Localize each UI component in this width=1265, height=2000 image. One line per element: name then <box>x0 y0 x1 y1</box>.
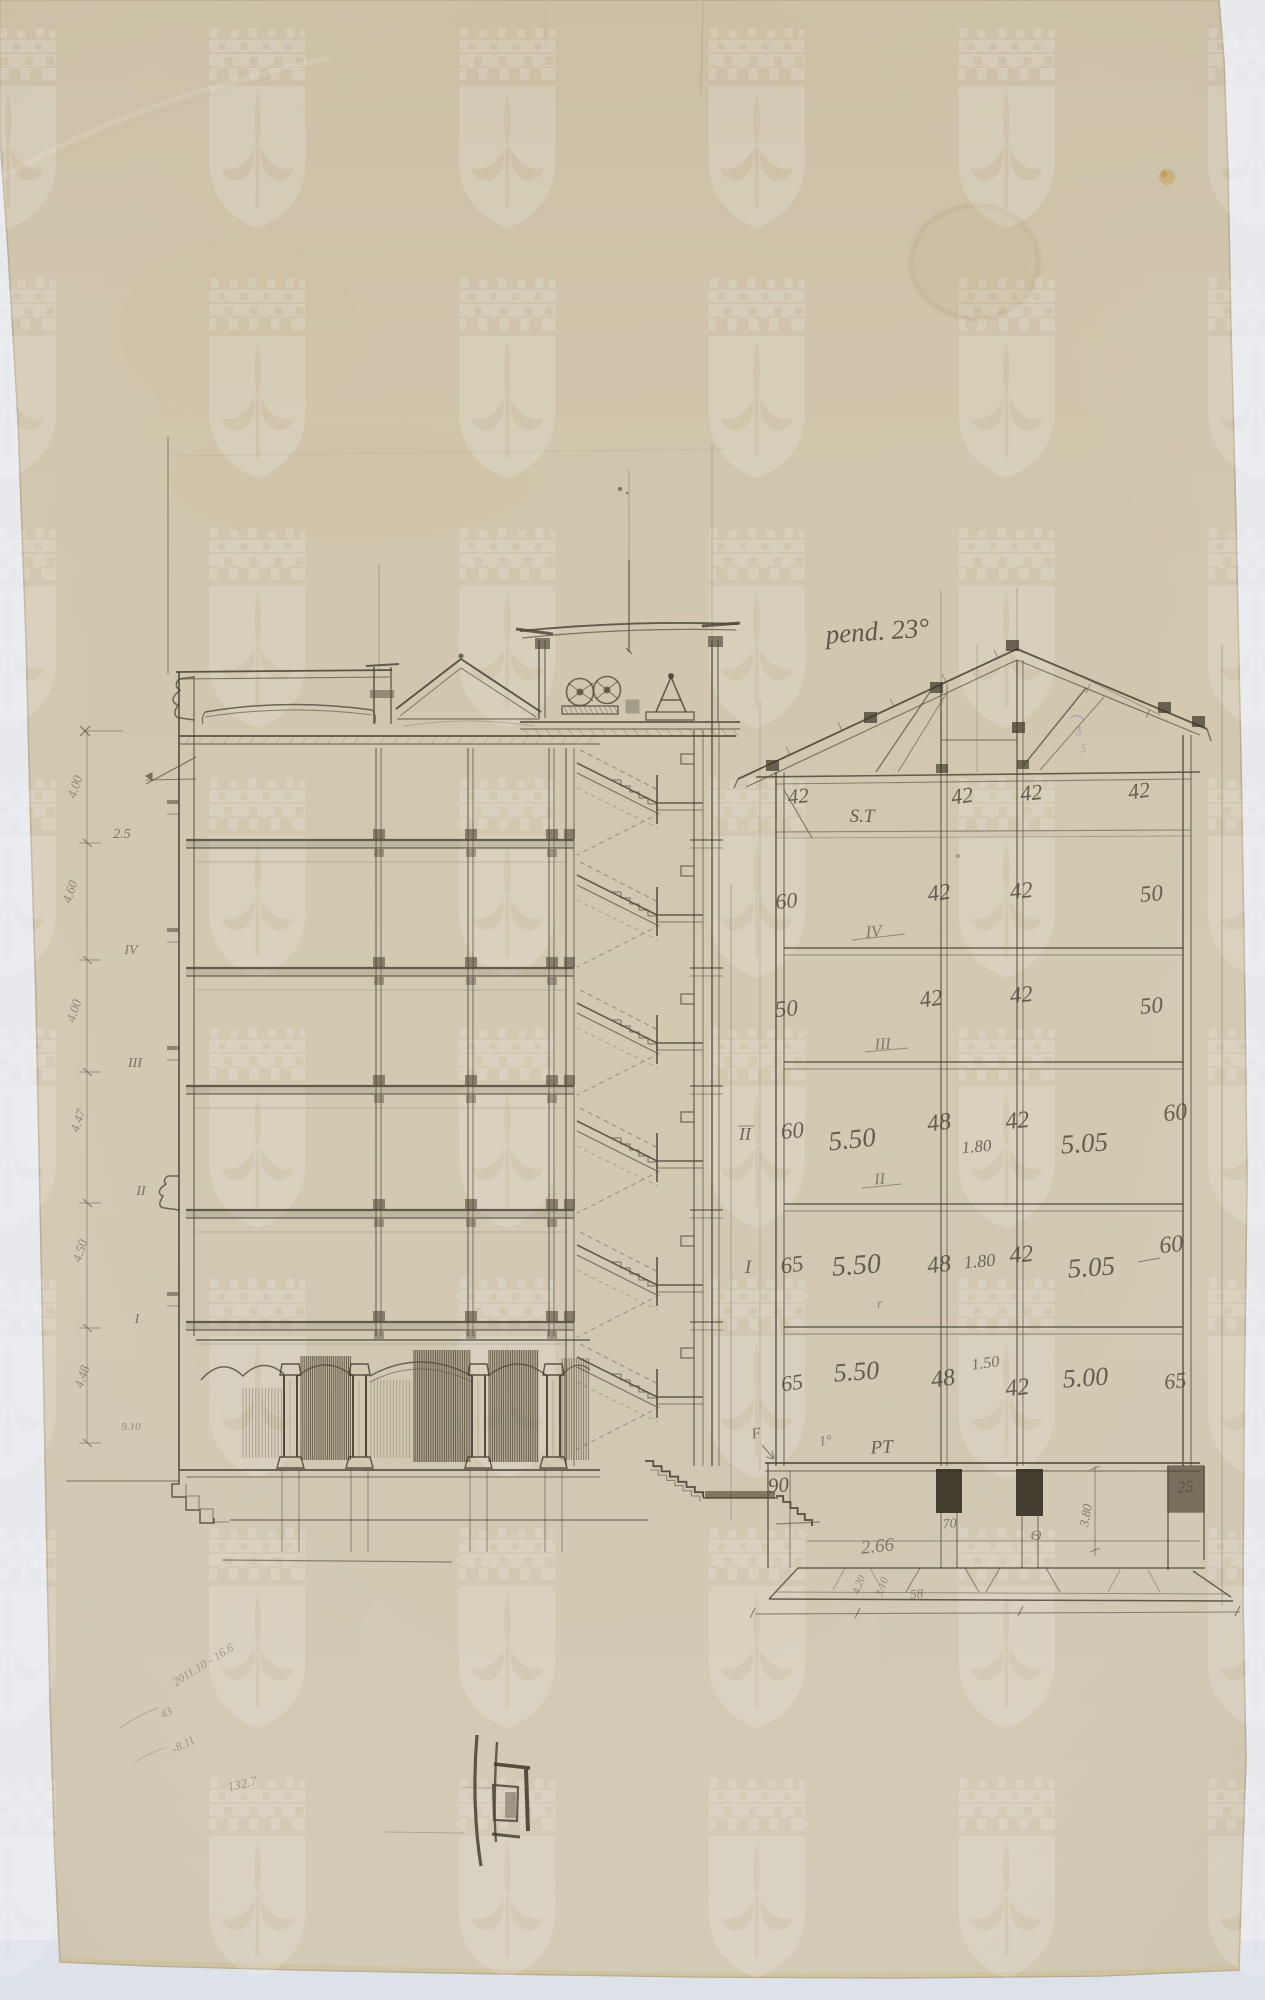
svg-text:42: 42 <box>1004 1107 1031 1135</box>
svg-text:42: 42 <box>926 879 952 907</box>
svg-text:1°: 1° <box>818 1433 833 1450</box>
svg-text:42: 42 <box>949 782 974 810</box>
svg-text:S.T: S.T <box>850 806 876 827</box>
svg-text:II: II <box>738 1124 752 1144</box>
svg-text:60: 60 <box>1162 1099 1189 1127</box>
svg-text:90: 90 <box>767 1472 791 1498</box>
svg-text:42: 42 <box>787 783 811 809</box>
svg-text:58: 58 <box>909 1585 924 1601</box>
svg-text:60: 60 <box>780 1117 806 1144</box>
svg-text:50: 50 <box>774 995 800 1022</box>
svg-text:60: 60 <box>1158 1231 1185 1259</box>
svg-text:50: 50 <box>1139 992 1165 1019</box>
svg-text:PT: PT <box>869 1436 895 1458</box>
svg-text:42: 42 <box>918 985 944 1013</box>
svg-text:III: III <box>127 1056 143 1071</box>
svg-text:5.50: 5.50 <box>833 1355 880 1387</box>
svg-text:5.05: 5.05 <box>1067 1250 1116 1283</box>
svg-text:II: II <box>135 1184 147 1199</box>
svg-text:2.5: 2.5 <box>113 827 131 842</box>
svg-text:65: 65 <box>779 1369 804 1397</box>
svg-text:Θ: Θ <box>1031 1528 1042 1544</box>
svg-text:42: 42 <box>1004 1374 1031 1402</box>
svg-text:IV: IV <box>123 943 139 958</box>
svg-text:2.66: 2.66 <box>860 1534 896 1558</box>
svg-text:48: 48 <box>925 1251 952 1280</box>
svg-text:5.50: 5.50 <box>831 1248 882 1282</box>
svg-text:9.10: 9.10 <box>121 1421 141 1433</box>
svg-text:42: 42 <box>1126 777 1151 805</box>
svg-text:5.50: 5.50 <box>827 1122 878 1157</box>
svg-text:42: 42 <box>1008 877 1033 904</box>
svg-text:70: 70 <box>942 1516 957 1532</box>
svg-text:1.80: 1.80 <box>963 1250 996 1273</box>
svg-text:65: 65 <box>1163 1367 1187 1394</box>
svg-text:48: 48 <box>929 1365 956 1394</box>
svg-text:60: 60 <box>774 887 798 914</box>
svg-text:48: 48 <box>925 1109 952 1138</box>
svg-text:5.00: 5.00 <box>1062 1361 1109 1393</box>
svg-text:42: 42 <box>1019 779 1043 806</box>
svg-text:65: 65 <box>779 1251 805 1279</box>
svg-text:42: 42 <box>1008 981 1033 1008</box>
svg-text:42: 42 <box>1008 1241 1035 1269</box>
svg-text:5.05: 5.05 <box>1060 1126 1109 1159</box>
svg-text:25: 25 <box>1177 1478 1194 1496</box>
svg-text:50: 50 <box>1139 880 1165 907</box>
svg-text:1.80: 1.80 <box>961 1136 993 1158</box>
